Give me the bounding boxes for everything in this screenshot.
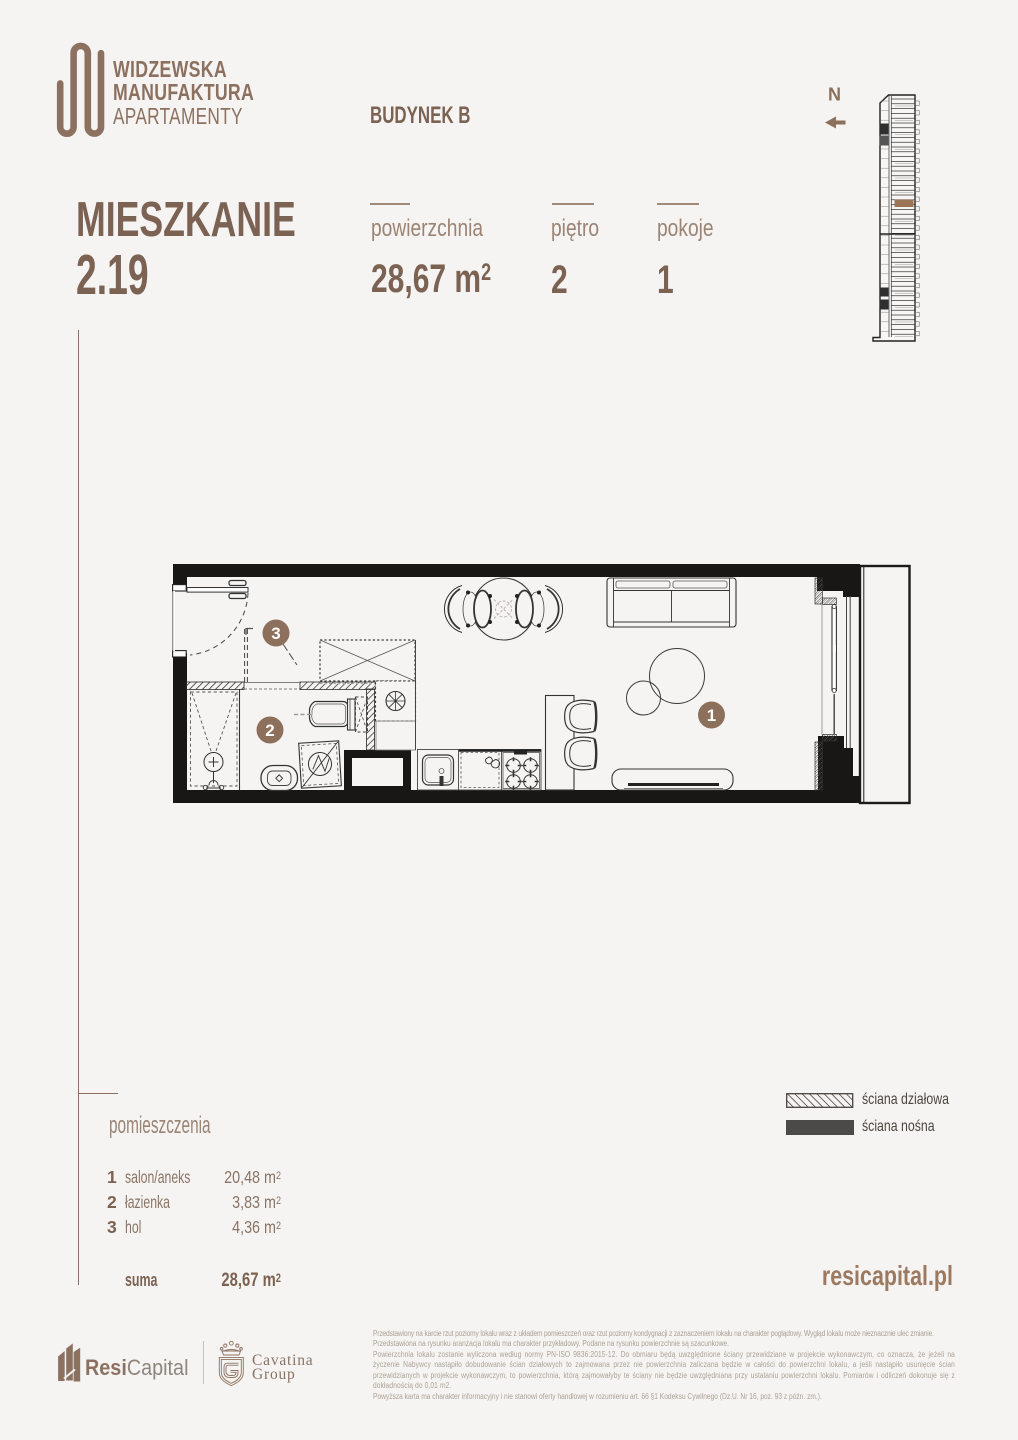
svg-text:2: 2 <box>265 721 274 740</box>
svg-text:3: 3 <box>271 624 280 643</box>
svg-text:N: N <box>828 85 841 105</box>
svg-text:1: 1 <box>707 706 716 725</box>
